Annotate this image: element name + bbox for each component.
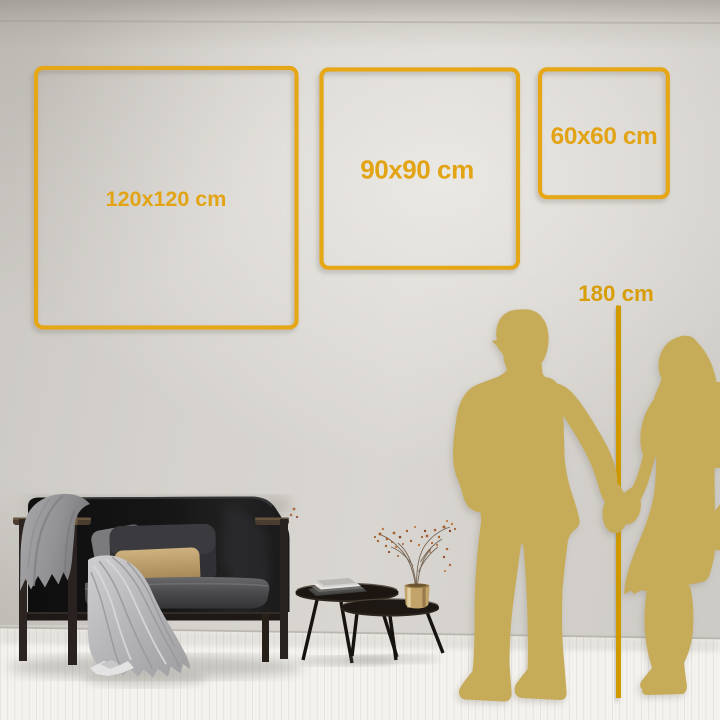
svg-text:90x90 cm: 90x90 cm (360, 155, 474, 185)
svg-text:60x60 cm: 60x60 cm (551, 123, 658, 150)
svg-text:180 cm: 180 cm (578, 281, 654, 306)
svg-text:120x120 cm: 120x120 cm (106, 187, 227, 211)
